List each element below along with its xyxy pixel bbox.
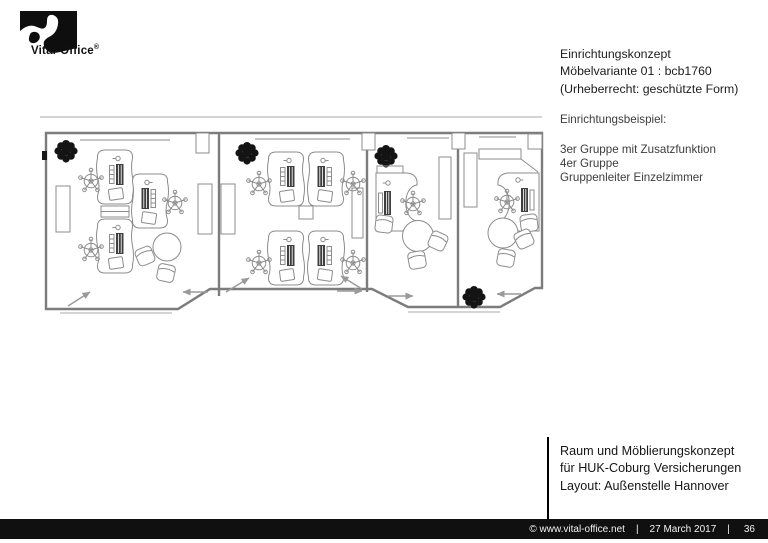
desk [268, 152, 305, 206]
concept-title-block: Einrichtungskonzept Möbelvariante 01 : b… [560, 46, 738, 98]
footer-page-number: 36 [744, 524, 755, 535]
radiator [221, 184, 235, 234]
cabinet [299, 206, 313, 219]
door-arrow [68, 292, 90, 306]
radiator [439, 157, 451, 219]
desk [268, 231, 305, 285]
cushion-chair [407, 250, 427, 270]
concept-line-2: Möbelvariante 01 : bcb1760 [560, 63, 738, 80]
desk [308, 152, 345, 206]
side-chair [375, 215, 394, 234]
footer-separator: | [727, 524, 730, 535]
radiator [352, 188, 363, 238]
project-line-1: Raum und Möblierungskonzept [560, 443, 741, 460]
round-table [488, 218, 518, 248]
plant-icon [462, 286, 485, 309]
project-line-3: Layout: Außenstelle Hannover [560, 478, 741, 495]
document-page: Vital-Office® [0, 0, 768, 543]
radiator [198, 184, 212, 234]
footer-copyright: © www.vital-office.net [529, 524, 625, 535]
plant-icon [54, 140, 77, 163]
plant-icon [235, 142, 258, 165]
desk [97, 219, 134, 273]
concept-line-1: Einrichtungskonzept [560, 46, 738, 63]
radiator [56, 186, 70, 232]
example-item-3: Gruppenleiter Einzelzimmer [560, 171, 716, 185]
desk [97, 150, 134, 204]
round-table [153, 233, 181, 261]
example-title: Einrichtungsbeispiel: [560, 113, 716, 127]
concept-line-3: (Urheberrecht: geschützte Form) [560, 81, 738, 98]
cushion-chair [496, 248, 516, 268]
project-line-2: für HUK-Coburg Versicherungen [560, 460, 741, 477]
desk-return [479, 149, 521, 159]
room-1 [54, 140, 212, 306]
room-4 [462, 149, 539, 309]
example-item-2: 4er Gruppe [560, 157, 716, 171]
radiator [464, 153, 477, 207]
example-item-1: 3er Gruppe mit Zusatzfunktion [560, 143, 716, 157]
wall-shelf [377, 166, 403, 173]
footer-bar: © www.vital-office.net | 27 March 2017 |… [0, 519, 768, 539]
footer-separator: | [636, 524, 639, 535]
cushion-chair [156, 263, 176, 283]
round-table [403, 221, 434, 252]
room-2 [221, 142, 365, 292]
footer-date: 27 March 2017 [650, 524, 717, 535]
door-arrow [341, 276, 362, 289]
room-3 [374, 145, 451, 296]
plant-icon [374, 145, 397, 168]
desk [308, 231, 345, 285]
example-block: Einrichtungsbeispiel: 3er Gruppe mit Zus… [560, 113, 716, 185]
project-block-rule [547, 437, 549, 519]
project-block: Raum und Möblierungskonzept für HUK-Cobu… [560, 443, 741, 495]
